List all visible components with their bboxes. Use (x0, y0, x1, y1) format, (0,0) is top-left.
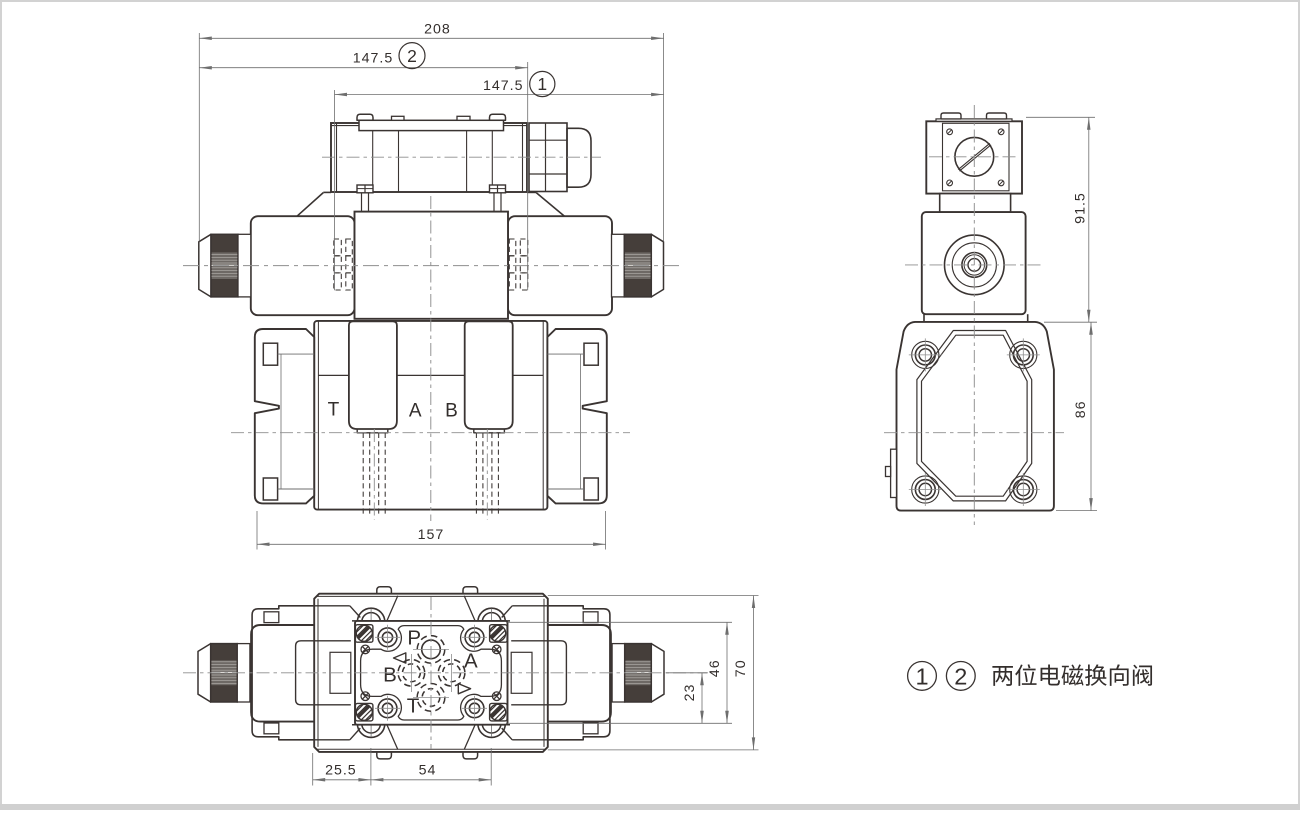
svg-text:T: T (407, 695, 420, 718)
svg-text:1: 1 (537, 74, 547, 94)
svg-text:B: B (445, 401, 458, 422)
svg-text:A: A (409, 401, 422, 422)
svg-text:54: 54 (419, 762, 437, 778)
svg-text:157: 157 (418, 527, 445, 543)
svg-text:A: A (464, 650, 478, 673)
svg-text:2: 2 (954, 663, 967, 689)
svg-text:91.5: 91.5 (1072, 192, 1088, 224)
svg-text:P: P (407, 627, 421, 650)
svg-text:23: 23 (682, 684, 698, 702)
svg-text:147.5: 147.5 (483, 78, 524, 94)
svg-text:T: T (328, 400, 340, 421)
svg-text:70: 70 (733, 659, 749, 677)
svg-text:B: B (383, 664, 397, 687)
svg-text:147.5: 147.5 (353, 51, 394, 67)
svg-text:46: 46 (707, 659, 723, 677)
svg-text:2: 2 (407, 46, 417, 66)
svg-text:1: 1 (915, 663, 928, 689)
svg-text:25.5: 25.5 (325, 762, 357, 778)
svg-text:86: 86 (1073, 401, 1089, 419)
svg-text:208: 208 (424, 22, 451, 38)
